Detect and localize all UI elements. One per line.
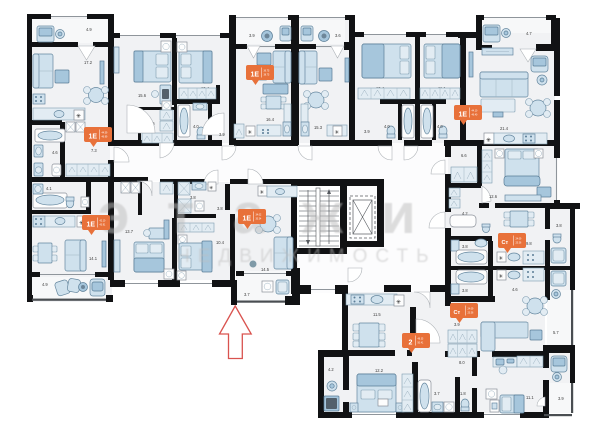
svg-text:3.8: 3.8 — [462, 244, 468, 249]
svg-text:42.10: 42.10 — [100, 221, 106, 223]
svg-text:✳: ✳ — [486, 137, 491, 144]
svg-text:48.35: 48.35 — [418, 339, 424, 341]
svg-text:1Е: 1Е — [251, 72, 260, 79]
svg-text:4.2: 4.2 — [328, 367, 334, 372]
svg-text:16.4: 16.4 — [266, 117, 275, 122]
svg-text:6.6: 6.6 — [461, 153, 467, 158]
svg-text:этажи: этажи — [98, 182, 454, 246]
svg-text:✳: ✳ — [499, 273, 504, 280]
svg-text:3.8: 3.8 — [556, 223, 562, 228]
svg-text:14.5: 14.5 — [261, 267, 270, 272]
svg-text:3.9: 3.9 — [364, 129, 370, 134]
svg-text:3.6: 3.6 — [335, 33, 341, 38]
svg-text:3.9: 3.9 — [219, 132, 225, 137]
svg-text:3.7: 3.7 — [244, 292, 250, 297]
svg-text:4.0: 4.0 — [193, 124, 199, 129]
svg-text:✳: ✳ — [396, 299, 401, 306]
svg-text:15.6: 15.6 — [138, 93, 147, 98]
svg-text:1Е: 1Е — [243, 216, 252, 223]
svg-text:8.0: 8.0 — [459, 360, 465, 365]
svg-text:4.6: 4.6 — [512, 287, 518, 292]
svg-text:35.54: 35.54 — [256, 219, 262, 221]
svg-text:2: 2 — [409, 340, 413, 347]
svg-text:✳: ✳ — [499, 255, 504, 262]
svg-text:1Е: 1Е — [87, 222, 96, 229]
svg-text:12.2: 12.2 — [375, 368, 384, 373]
svg-text:24.09: 24.09 — [516, 239, 522, 241]
svg-text:4.6: 4.6 — [52, 150, 58, 155]
svg-text:25.56: 25.56 — [516, 243, 522, 245]
svg-text:✳: ✳ — [76, 113, 81, 120]
svg-text:46.40: 46.40 — [472, 115, 478, 117]
svg-text:3.9: 3.9 — [558, 396, 564, 401]
svg-text:14.1: 14.1 — [89, 256, 98, 261]
svg-text:12.6: 12.6 — [489, 194, 498, 199]
svg-text:44.10: 44.10 — [472, 111, 478, 113]
svg-text:21.4: 21.4 — [500, 126, 509, 131]
svg-text:4.9: 4.9 — [42, 282, 48, 287]
svg-text:46.99: 46.99 — [102, 137, 108, 139]
svg-text:5.7: 5.7 — [553, 330, 559, 335]
svg-text:17.2: 17.2 — [84, 60, 93, 65]
svg-text:4.0: 4.0 — [384, 124, 390, 129]
svg-text:4.0: 4.0 — [437, 124, 443, 129]
svg-text:11.5: 11.5 — [373, 312, 381, 317]
svg-text:3.7: 3.7 — [434, 391, 440, 396]
svg-text:1Е: 1Е — [89, 134, 98, 141]
svg-text:✳: ✳ — [335, 129, 340, 136]
svg-text:1Е: 1Е — [459, 112, 468, 119]
svg-text:Ст: Ст — [454, 310, 461, 316]
svg-text:50.41: 50.41 — [418, 343, 424, 345]
svg-text:15.3: 15.3 — [314, 125, 323, 130]
svg-text:25.56: 25.56 — [468, 313, 474, 315]
svg-text:44.59: 44.59 — [102, 133, 108, 135]
svg-text:1.8: 1.8 — [460, 391, 466, 396]
svg-text:11.1: 11.1 — [526, 395, 534, 400]
svg-text:✳: ✳ — [248, 129, 253, 136]
svg-text:24.09: 24.09 — [468, 309, 474, 311]
svg-text:7.3: 7.3 — [91, 148, 97, 153]
svg-text:4.7: 4.7 — [526, 31, 532, 36]
svg-text:36.75: 36.75 — [264, 71, 270, 73]
svg-text:Ст: Ст — [502, 240, 509, 246]
svg-text:43.91: 43.91 — [100, 225, 106, 227]
svg-text:4.9: 4.9 — [86, 27, 92, 32]
svg-text:34.02: 34.02 — [256, 215, 262, 217]
svg-text:38.75: 38.75 — [264, 75, 270, 77]
svg-text:9.8: 9.8 — [526, 241, 532, 246]
svg-text:4.1: 4.1 — [46, 186, 52, 191]
svg-text:3.8: 3.8 — [462, 288, 468, 293]
svg-text:НЕДВИЖИМОСТЬ: НЕДВИЖИМОСТЬ — [176, 246, 437, 267]
svg-text:3.9: 3.9 — [249, 33, 255, 38]
